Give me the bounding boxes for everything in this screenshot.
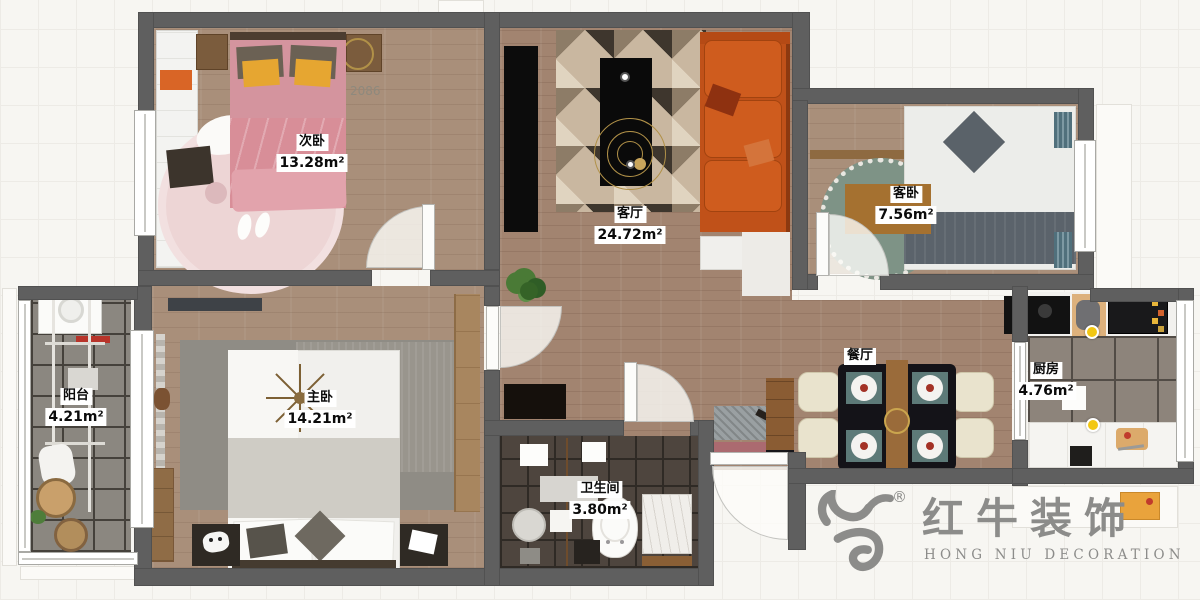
tv-console-strip [168, 298, 262, 311]
room-area: 4.76m² [1015, 382, 1076, 400]
food-dot [926, 384, 934, 392]
exterior-frame-below-balcony [20, 566, 138, 580]
rack-panel [68, 368, 98, 390]
nightstand [196, 34, 228, 70]
pillow-yellow [242, 59, 280, 87]
wall-master-right-upper [484, 286, 500, 306]
drying-rack-bar [45, 342, 105, 345]
wall-master-right-lower [484, 370, 500, 586]
window-kitchen [1176, 300, 1194, 462]
washer-door [58, 297, 84, 323]
brand-text: 红牛装饰 HONG NIU DECORATION [912, 490, 1185, 563]
room-name: 次卧 [296, 134, 328, 151]
brand-name-cn: 红牛装饰 [922, 498, 1185, 540]
fridge-magnet [1158, 326, 1164, 332]
toy-eye [209, 538, 213, 542]
wardrobe-wood [454, 294, 480, 512]
curtain-tassel [1054, 232, 1072, 268]
plant-small [30, 510, 46, 524]
wall-cabinet [520, 444, 548, 466]
window-balcony-bottom [18, 552, 138, 565]
rug-dot [205, 182, 227, 204]
room-label-balcony: 阳台 4.21m² [45, 388, 106, 426]
marker-dot-kitchen-bottom [1086, 418, 1100, 432]
room-label-dining: 餐厅 [844, 348, 876, 365]
wall-guest-left [792, 100, 808, 290]
room-label-bathroom: 卫生间 3.80m² [569, 481, 630, 519]
decor-gold-dot [634, 158, 646, 170]
brand-name-en: HONG NIU DECORATION [924, 547, 1185, 563]
window-secondary-bedroom [134, 110, 156, 236]
door-leaf-guest-bedroom [816, 212, 829, 276]
wall-kitchen-left-upper [1012, 286, 1028, 342]
door-leaf-secondary-bedroom [422, 204, 435, 270]
curtain-tie [154, 388, 170, 410]
room-name: 餐厅 [844, 348, 876, 365]
toilet-button [620, 540, 624, 544]
window-master-bedroom [130, 330, 154, 528]
fridge-magnet [1152, 318, 1158, 324]
pillow-yellow [294, 59, 332, 87]
room-area: 4.21m² [45, 408, 106, 426]
room-name: 卫生间 [577, 481, 622, 498]
room-area: 3.80m² [569, 501, 630, 519]
room-label-master-bedroom: 主卧 14.21m² [284, 390, 355, 428]
woven-basket [54, 518, 88, 552]
burner [1038, 304, 1052, 318]
water-pipe [566, 438, 568, 566]
tv-wall-unit [504, 46, 538, 232]
dining-chair [952, 372, 994, 412]
room-label-guest-bedroom: 客卧 7.56m² [875, 186, 936, 224]
sofa-cushion [704, 160, 782, 212]
wall-living-left-divider [484, 12, 500, 270]
room-area: 14.21m² [284, 410, 355, 428]
food-dot [860, 384, 868, 392]
food-dot [1124, 432, 1131, 439]
shoe-shelf-wood [766, 378, 794, 454]
room-label-secondary-bedroom: 次卧 13.28m² [276, 134, 347, 172]
candle-dot [620, 72, 630, 82]
dark-box [1070, 446, 1092, 466]
wall-cabinet [582, 442, 606, 462]
washer-round [512, 508, 546, 542]
dining-chair [798, 372, 840, 412]
wall-guest-top [792, 88, 1094, 104]
room-name: 主卧 [304, 390, 336, 407]
marker-dot-kitchen-top [1085, 325, 1099, 339]
wardrobe-orange-box [160, 70, 192, 90]
dining-chair [952, 418, 994, 458]
window-balcony-left [18, 300, 31, 552]
wall-dining-bottom [788, 468, 1028, 484]
hall-console-dark [504, 384, 566, 419]
wall-balcony-top [18, 286, 138, 300]
candle-dot [626, 160, 635, 169]
wall-bedroom-divider-right [430, 270, 500, 286]
wall-living-right-upper [792, 12, 810, 100]
wall-bottom-outer [134, 568, 714, 586]
room-name: 阳台 [60, 388, 92, 405]
exterior-frame-left-of-balcony [2, 288, 17, 566]
shower-tray [642, 494, 692, 554]
registered-mark: ® [892, 488, 907, 506]
bed-width-dimension: 2086 [350, 84, 381, 98]
table-ring [884, 408, 910, 434]
food-dot [860, 442, 868, 450]
stool [520, 548, 540, 564]
wood-mat [642, 556, 692, 566]
wall-bath-right [698, 420, 714, 586]
room-area: 13.28m² [276, 154, 347, 172]
room-label-kitchen: 厨房 4.76m² [1015, 362, 1076, 400]
curtain-tassel [1054, 112, 1072, 148]
toy-eye [218, 537, 222, 541]
floor-mat-white [742, 232, 790, 296]
room-area: 7.56m² [875, 206, 936, 224]
wall-bath-top-left [484, 420, 624, 436]
wall-kitchen-bottom [1012, 468, 1194, 484]
exterior-frame-right-of-guest-bedroom [1096, 104, 1132, 290]
blanket-throw [231, 166, 346, 212]
hall-plant [520, 282, 538, 300]
wall-guest-bottom-right [880, 274, 1094, 290]
kitchen-counter [1028, 422, 1178, 468]
desk-dark [166, 146, 214, 188]
pillow-dark [246, 524, 288, 559]
wall-top-main [138, 12, 810, 28]
room-area: 24.72m² [594, 226, 665, 244]
room-name: 客卧 [890, 186, 922, 203]
door-leaf-entrance [710, 452, 788, 465]
dark-bin [574, 540, 600, 564]
wall-entry-stub [788, 452, 806, 550]
door-leaf-master-bedroom [486, 306, 499, 370]
room-name: 客厅 [614, 206, 646, 223]
door-leaf-bathroom [624, 362, 637, 422]
bull-icon: ® [816, 490, 912, 576]
door-arc-entrance [712, 466, 788, 540]
food-dot [926, 442, 934, 450]
toilet-button [606, 540, 610, 544]
blanket-band [228, 438, 400, 518]
brand-logo: ® 红牛装饰 HONG NIU DECORATION [816, 490, 1185, 576]
fridge-magnet [1158, 310, 1164, 316]
floorplan-canvas: 2086 [0, 0, 1200, 600]
room-name: 厨房 [1030, 362, 1062, 379]
wall-bedroom-divider-left [138, 270, 372, 286]
window-guest-bedroom [1074, 140, 1096, 252]
round-mirror [342, 38, 374, 70]
room-label-living-room: 客厅 24.72m² [594, 206, 665, 244]
